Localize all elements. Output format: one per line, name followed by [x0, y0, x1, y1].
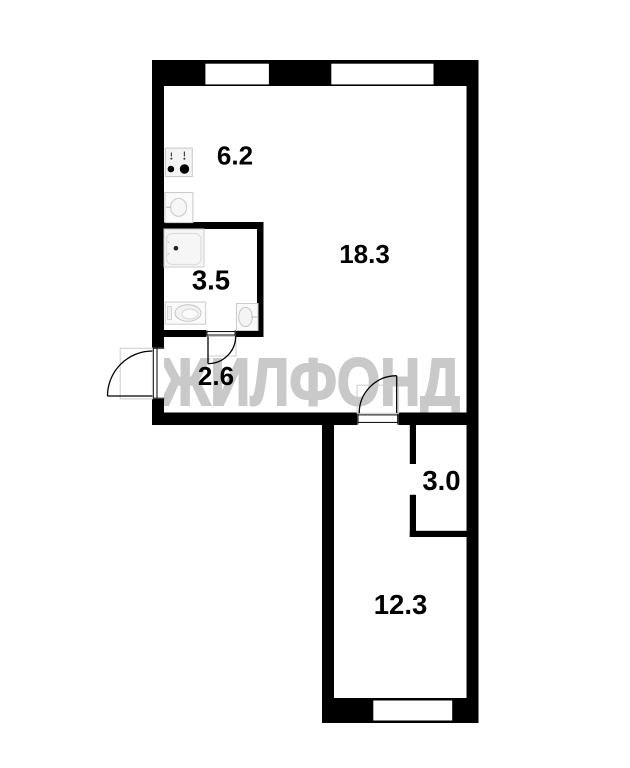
svg-text:2.6: 2.6 [198, 361, 234, 391]
svg-text:6.2: 6.2 [217, 141, 253, 171]
svg-text:12.3: 12.3 [374, 589, 428, 620]
svg-text:3.0: 3.0 [422, 465, 460, 496]
svg-text:18.3: 18.3 [339, 239, 390, 269]
svg-text:3.5: 3.5 [192, 265, 230, 296]
